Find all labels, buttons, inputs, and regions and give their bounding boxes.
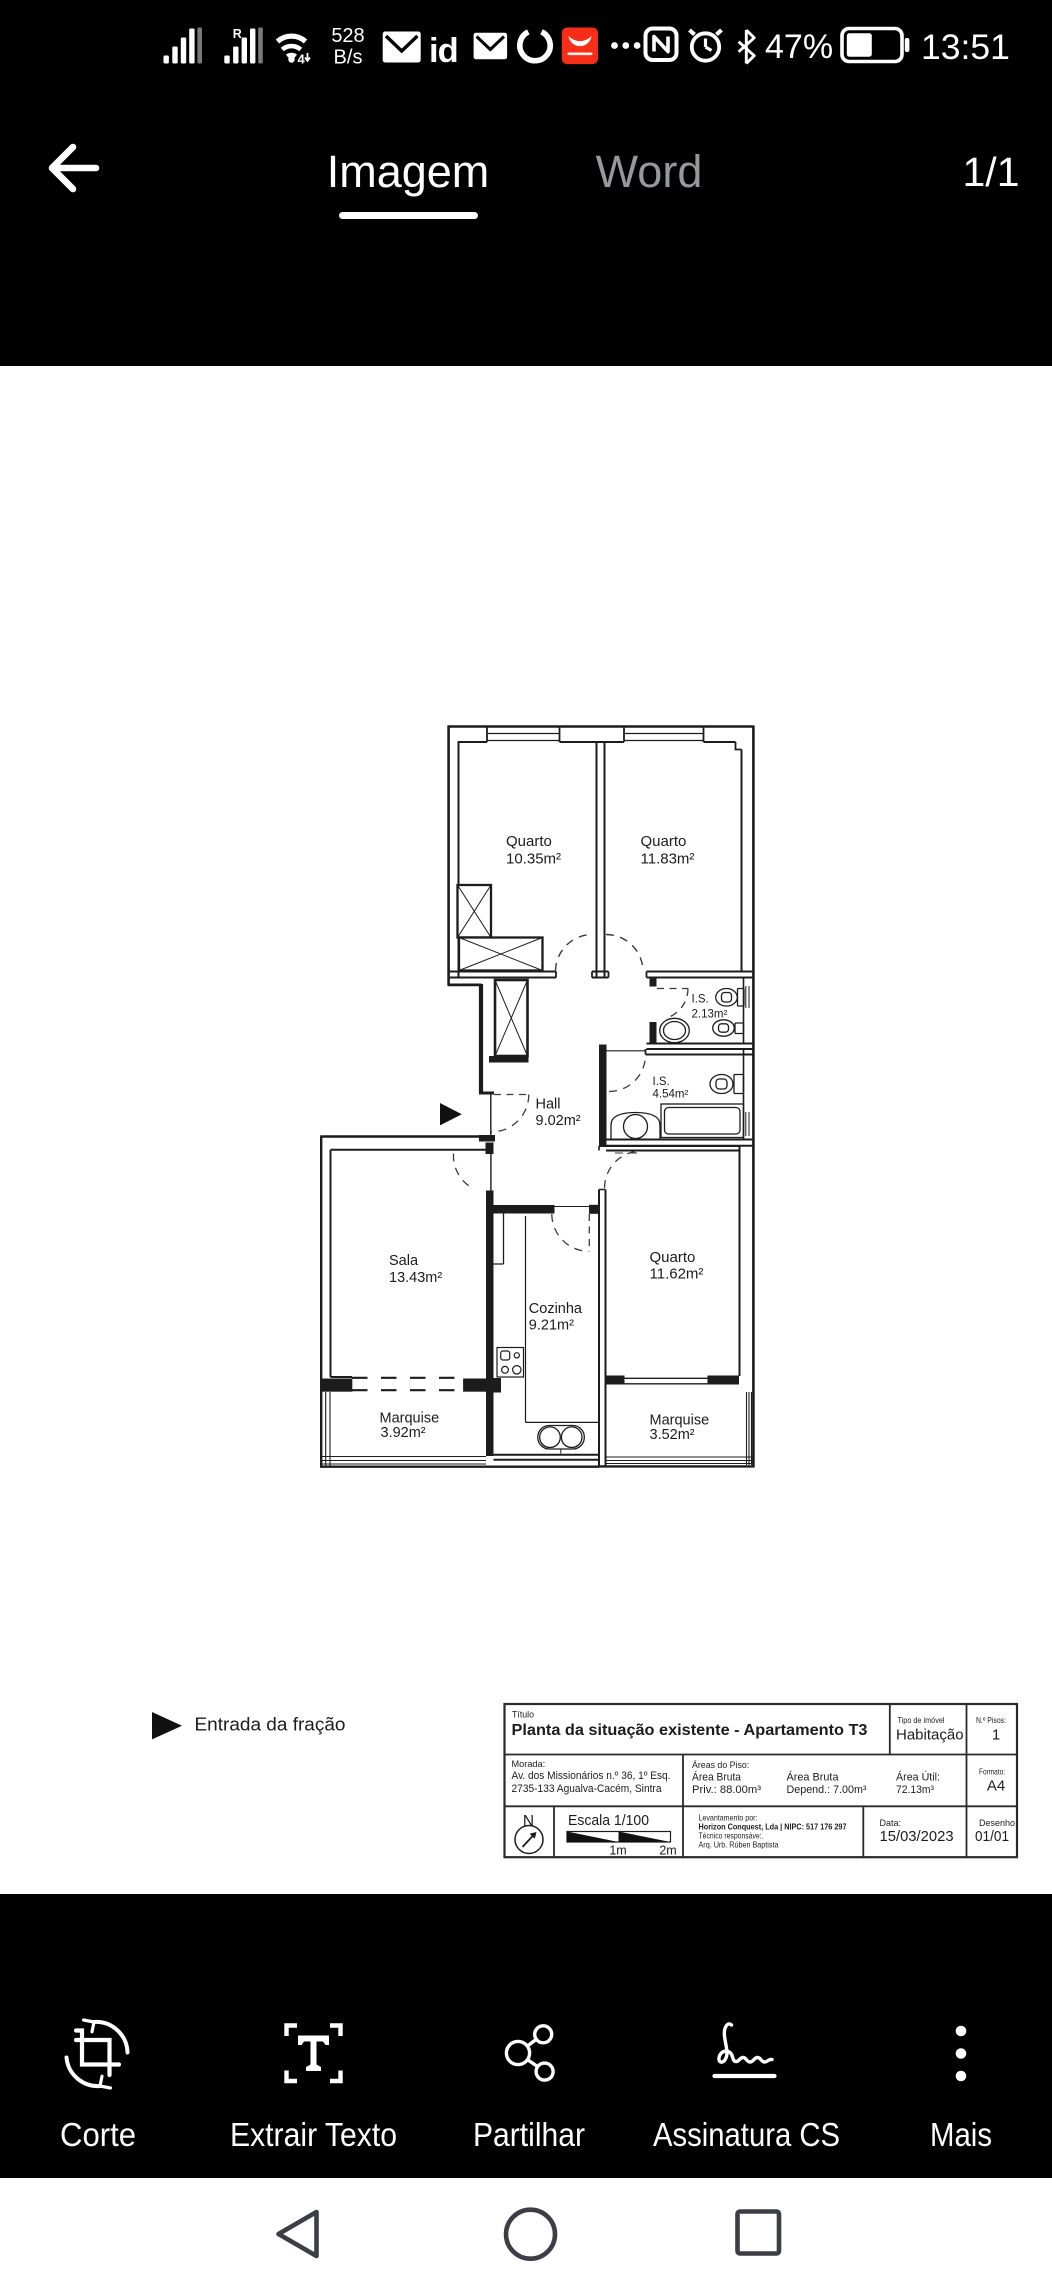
svg-text:Cozinha: Cozinha [529, 1301, 583, 1317]
svg-text:4.54m²: 4.54m² [653, 1089, 689, 1101]
svg-text:2m: 2m [659, 1844, 676, 1858]
svg-text:1m: 1m [609, 1844, 626, 1858]
svg-text:Quarto: Quarto [650, 1249, 696, 1266]
svg-text:Imagem: Imagem [327, 146, 490, 197]
svg-text:3.52m²: 3.52m² [650, 1427, 695, 1443]
svg-text:Área Bruta: Área Bruta [692, 1771, 742, 1784]
svg-text:9.02m²: 9.02m² [536, 1113, 581, 1129]
svg-text:3.92m²: 3.92m² [381, 1425, 426, 1441]
svg-text:Sala: Sala [389, 1253, 419, 1269]
svg-text:72.13m³: 72.13m³ [896, 1784, 934, 1796]
svg-text:Av. dos Missionários n.º 36, 1: Av. dos Missionários n.º 36, 1º Esq. [512, 1770, 671, 1782]
svg-text:Área Bruta: Área Bruta [787, 1771, 840, 1784]
svg-text:Desenho: Desenho [979, 1818, 1015, 1828]
svg-text:Hall: Hall [536, 1097, 561, 1113]
svg-text:I.S.: I.S. [692, 994, 709, 1006]
svg-text:Escala 1/100: Escala 1/100 [568, 1813, 649, 1829]
svg-text:Priv.: 88.00m³: Priv.: 88.00m³ [692, 1784, 761, 1796]
svg-text:Word: Word [596, 146, 703, 197]
svg-text:Tipo de imóvel: Tipo de imóvel [898, 1716, 945, 1725]
svg-text:13.43m²: 13.43m² [389, 1270, 442, 1286]
svg-text:I.S.: I.S. [653, 1076, 670, 1088]
svg-text:Partilhar: Partilhar [473, 2117, 585, 2154]
svg-text:Título: Título [512, 1710, 534, 1720]
svg-text:N.º Pisos:: N.º Pisos: [976, 1716, 1006, 1725]
svg-text:11.62m²: 11.62m² [650, 1266, 704, 1283]
svg-text:R: R [233, 27, 242, 41]
svg-text:Morada:: Morada: [512, 1759, 546, 1769]
svg-text:N: N [523, 1813, 534, 1830]
svg-text:Áreas do Piso:: Áreas do Piso: [692, 1760, 749, 1770]
svg-text:4: 4 [298, 52, 306, 67]
svg-text:528: 528 [331, 25, 364, 47]
svg-text:A4: A4 [987, 1778, 1005, 1795]
svg-text:Planta da situação existente -: Planta da situação existente - Apartamen… [512, 1722, 868, 1739]
svg-text:01/01: 01/01 [975, 1829, 1009, 1845]
svg-text:Formato:: Formato: [979, 1768, 1005, 1777]
svg-text:Levantamento por:: Levantamento por: [699, 1814, 758, 1823]
svg-text:Mais: Mais [930, 2117, 992, 2154]
svg-text:Depend.: 7.00m³: Depend.: 7.00m³ [787, 1784, 867, 1796]
svg-text:Horizon Conquest, Lda | NIPC:: Horizon Conquest, Lda | NIPC: 517 176 29… [699, 1823, 847, 1832]
svg-text:Data:: Data: [880, 1818, 902, 1828]
svg-text:Habitação: Habitação [896, 1727, 964, 1744]
svg-text:Arq. Urb. Rúben Baptista: Arq. Urb. Rúben Baptista [699, 1841, 779, 1850]
svg-text:1/1: 1/1 [963, 149, 1020, 195]
svg-text:1: 1 [992, 1727, 1000, 1744]
svg-text:Técnico responsáve:.: Técnico responsáve:. [699, 1832, 764, 1841]
svg-text:11.83m²: 11.83m² [641, 851, 695, 868]
svg-text:Quarto: Quarto [641, 833, 687, 850]
svg-text:47%: 47% [765, 28, 833, 66]
svg-text:15/03/2023: 15/03/2023 [880, 1829, 954, 1845]
svg-text:Quarto: Quarto [506, 833, 552, 850]
svg-text:2.13m²: 2.13m² [692, 1009, 728, 1021]
svg-text:Corte: Corte [60, 2117, 136, 2154]
svg-text:10.35m²: 10.35m² [506, 851, 561, 868]
svg-text:13:51: 13:51 [921, 27, 1010, 67]
svg-text:9.21m²: 9.21m² [529, 1318, 574, 1334]
svg-text:Área Útil:: Área Útil: [896, 1771, 940, 1784]
svg-text:Entrada da fração: Entrada da fração [195, 1715, 346, 1735]
svg-text:B/s: B/s [334, 47, 363, 69]
svg-text:id: id [429, 32, 458, 70]
svg-text:Assinatura CS: Assinatura CS [653, 2117, 840, 2154]
svg-text:2735-133 Agualva-Cacém, Sintra: 2735-133 Agualva-Cacém, Sintra [512, 1783, 662, 1795]
svg-text:Extrair Texto: Extrair Texto [230, 2117, 397, 2154]
